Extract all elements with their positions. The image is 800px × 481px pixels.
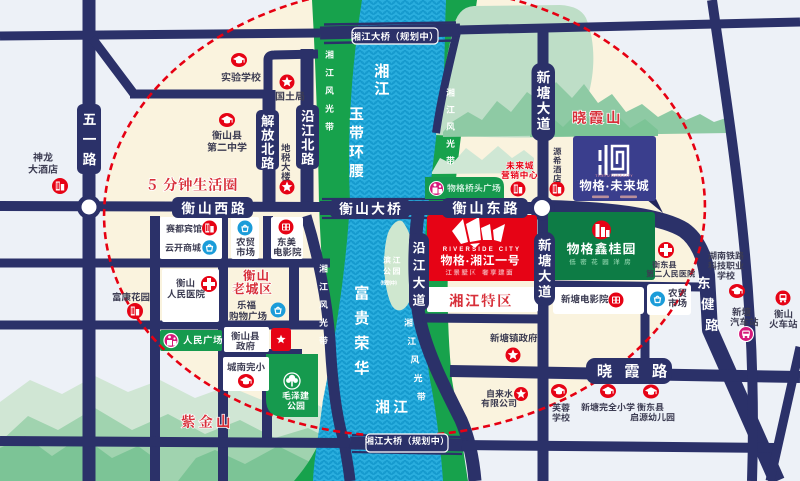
svg-text:T H E F U T U R E C I T Y: T H E F U T U R E C I T Y [595, 174, 633, 178]
svg-text:RIVERSIDE CITY: RIVERSIDE CITY [443, 247, 521, 253]
